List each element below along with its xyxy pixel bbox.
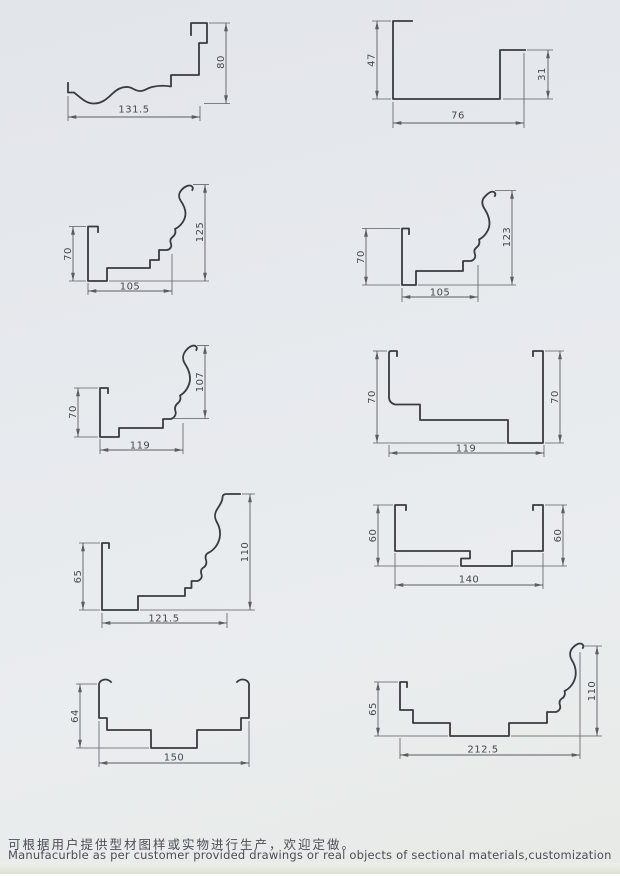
dimension-label: 105 [430, 288, 451, 299]
dimension-label: 70 [367, 390, 378, 404]
dimension-label: 107 [195, 372, 206, 393]
dimension-label: 140 [459, 575, 480, 586]
profile-outline [100, 346, 197, 437]
profile-outline [393, 21, 525, 99]
dimension-label: 80 [216, 55, 227, 69]
dimension-label: 70 [356, 250, 367, 264]
dimension-label: 60 [368, 529, 379, 543]
dimension-label: 60 [553, 529, 564, 543]
dimension-label: 121.5 [148, 614, 179, 625]
dimension-label: 110 [240, 542, 251, 563]
profile-figure-9: 64 150 [70, 680, 249, 767]
profile-figure-1: 80 131.5 [68, 23, 230, 121]
dimension-label: 70 [550, 390, 561, 404]
dimension-label: 70 [63, 247, 74, 261]
dimension-label: 31 [537, 67, 548, 81]
profile-figure-3: 70 105 125 [63, 185, 209, 296]
profile-outline [88, 185, 193, 281]
profile-figure-2: 47 31 76 [367, 21, 554, 128]
dimension-label: 65 [368, 702, 379, 716]
profile-outline [68, 23, 207, 104]
dimension-label: 105 [120, 282, 141, 293]
profile-figure-4: 70 105 123 [356, 191, 516, 303]
profile-figure-10: 65 212.5 110 [368, 643, 602, 759]
dimension-label: 70 [68, 405, 79, 419]
profile-figure-6: 70 70 119 [367, 351, 564, 457]
dimension-label: 119 [456, 444, 477, 455]
dimension-label: 110 [587, 681, 598, 702]
profile-outline [389, 351, 543, 443]
profile-figure-7: 65 121.5 110 [73, 494, 255, 628]
dimension-label: 64 [70, 709, 81, 723]
dimension-label: 150 [164, 753, 185, 764]
dimension-label: 76 [451, 111, 465, 122]
footer-band [0, 863, 620, 874]
profile-outline [99, 680, 249, 748]
profile-outline [102, 494, 240, 610]
profile-figure-5: 70 119 107 [68, 346, 209, 455]
profile-outline [395, 505, 543, 566]
dimension-label: 131.5 [118, 105, 149, 116]
catalog-page: 80 131.5 47 31 76 70 105 125 [0, 0, 620, 874]
dimension-label: 47 [367, 53, 378, 67]
dimension-label: 125 [195, 222, 206, 243]
dimension-label: 119 [130, 441, 151, 452]
profile-figure-8: 60 60 140 [368, 505, 567, 589]
dimension-label: 212.5 [467, 745, 498, 756]
profile-outline [400, 643, 583, 736]
profile-outline [402, 192, 495, 285]
dimension-label: 65 [73, 570, 84, 584]
profiles-drawing: 80 131.5 47 31 76 70 105 125 [0, 0, 620, 874]
dimension-label: 123 [502, 227, 513, 248]
